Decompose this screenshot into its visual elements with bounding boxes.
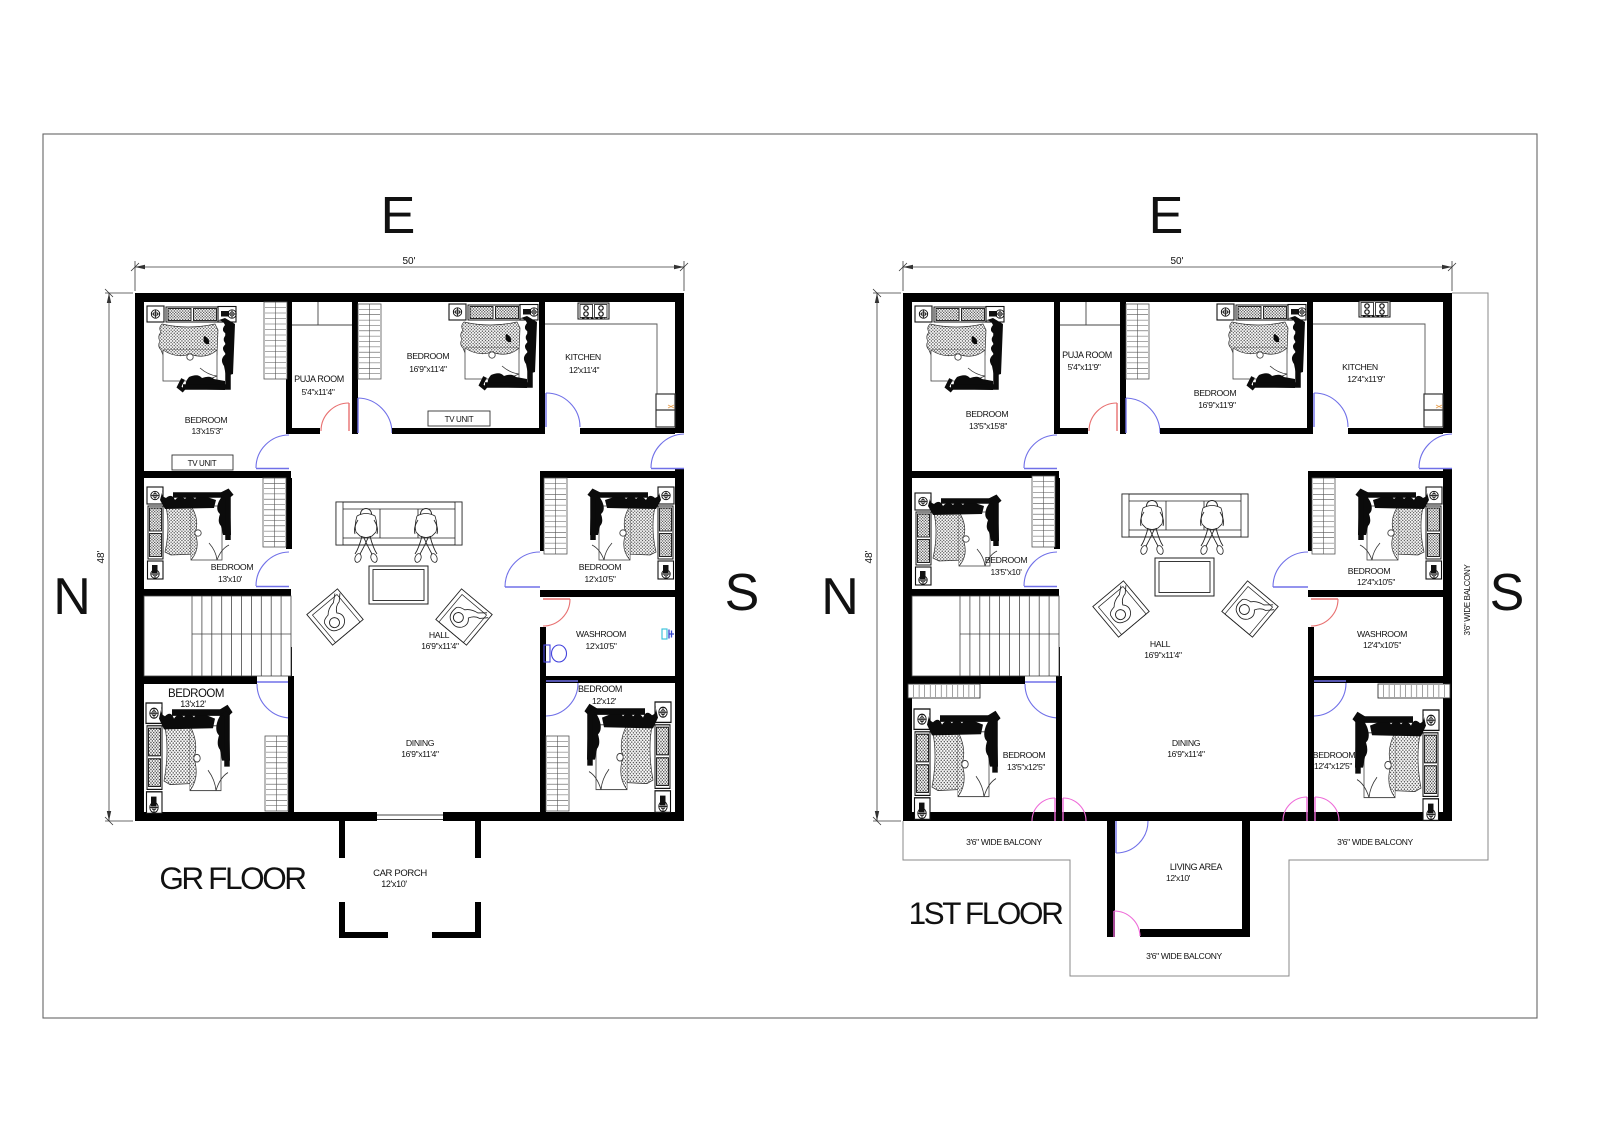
svg-text:BEDROOM: BEDROOM	[185, 415, 228, 425]
svg-text:PUJA ROOM: PUJA ROOM	[1062, 350, 1112, 360]
svg-text:16'9"x11'4": 16'9"x11'4"	[421, 641, 459, 651]
svg-text:LIVING AREA: LIVING AREA	[1170, 862, 1223, 872]
svg-text:50': 50'	[1170, 256, 1183, 267]
svg-text:48': 48'	[864, 550, 875, 563]
svg-text:13'x10': 13'x10'	[218, 574, 243, 584]
svg-text:16'9"x11'4": 16'9"x11'4"	[1144, 650, 1182, 660]
svg-text:DINING: DINING	[1172, 738, 1201, 748]
svg-text:BEDROOM: BEDROOM	[1194, 388, 1237, 398]
svg-text:12'4"x10'5": 12'4"x10'5"	[1363, 640, 1401, 650]
svg-text:5'4"x11'4": 5'4"x11'4"	[301, 387, 334, 397]
svg-text:BEDROOM: BEDROOM	[579, 562, 622, 572]
svg-text:13'x12': 13'x12'	[180, 699, 206, 709]
svg-text:16'9"x11'4": 16'9"x11'4"	[409, 364, 447, 374]
svg-text:S: S	[1490, 564, 1525, 622]
svg-text:3'6" WIDE BALCONY: 3'6" WIDE BALCONY	[966, 837, 1042, 847]
svg-text:16'9"x11'4": 16'9"x11'4"	[401, 749, 439, 759]
svg-text:3'6" WIDE BALCONY: 3'6" WIDE BALCONY	[1146, 951, 1222, 961]
svg-text:3'6" WIDE BALCONY: 3'6" WIDE BALCONY	[1337, 837, 1413, 847]
svg-text:5'4"x11'9": 5'4"x11'9"	[1067, 362, 1100, 372]
svg-text:48': 48'	[96, 550, 107, 563]
svg-text:BEDROOM: BEDROOM	[985, 555, 1028, 565]
svg-text:BEDROOM: BEDROOM	[1348, 566, 1391, 576]
svg-text:12'4"x10'5": 12'4"x10'5"	[1357, 577, 1395, 587]
svg-text:13'5"x12'5": 13'5"x12'5"	[1007, 762, 1045, 772]
svg-text:12'x10'5": 12'x10'5"	[586, 641, 617, 651]
svg-text:TV UNIT: TV UNIT	[445, 415, 474, 424]
svg-text:BEDROOM: BEDROOM	[1313, 750, 1356, 760]
svg-text:E: E	[1149, 187, 1184, 245]
svg-text:12'x12': 12'x12'	[592, 696, 617, 706]
svg-text:12'x11'4": 12'x11'4"	[569, 365, 600, 375]
svg-text:TV UNIT: TV UNIT	[188, 459, 217, 468]
svg-text:HALL: HALL	[1150, 639, 1171, 649]
svg-text:BEDROOM: BEDROOM	[211, 562, 254, 572]
svg-text:N: N	[821, 568, 859, 626]
svg-text:S: S	[725, 564, 760, 622]
svg-text:PUJA ROOM: PUJA ROOM	[294, 374, 344, 384]
svg-text:50': 50'	[402, 256, 415, 267]
svg-text:12'4"x11'9": 12'4"x11'9"	[1347, 374, 1385, 384]
svg-text:BEDROOM: BEDROOM	[1003, 750, 1046, 760]
svg-text:13'5"x10': 13'5"x10'	[991, 567, 1023, 577]
svg-text:13'5"x15'8": 13'5"x15'8"	[969, 421, 1007, 431]
svg-text:WASHROOM: WASHROOM	[1357, 629, 1407, 639]
svg-text:DINING: DINING	[406, 738, 435, 748]
svg-text:13'x15'3": 13'x15'3"	[192, 426, 223, 436]
svg-text:GR FLOOR: GR FLOOR	[159, 860, 306, 896]
svg-text:CAR PORCH: CAR PORCH	[373, 868, 427, 879]
svg-text:12'x10': 12'x10'	[1166, 873, 1191, 883]
svg-text:12'4"x12'5": 12'4"x12'5"	[1314, 761, 1352, 771]
svg-text:BEDROOM: BEDROOM	[966, 409, 1009, 419]
svg-text:12'x10'5": 12'x10'5"	[585, 574, 616, 584]
svg-text:N: N	[53, 568, 91, 626]
svg-text:KITCHEN: KITCHEN	[565, 352, 601, 362]
svg-text:16'9"x11'9": 16'9"x11'9"	[1198, 400, 1236, 410]
svg-text:KITCHEN: KITCHEN	[1342, 362, 1378, 372]
svg-text:3'6" WIDE BALCONY: 3'6" WIDE BALCONY	[1463, 564, 1472, 636]
svg-text:E: E	[381, 187, 416, 245]
svg-text:WASHROOM: WASHROOM	[576, 629, 626, 639]
svg-text:BEDROOM: BEDROOM	[578, 684, 622, 694]
svg-text:1ST FLOOR: 1ST FLOOR	[909, 895, 1064, 931]
svg-text:16'9"x11'4": 16'9"x11'4"	[1167, 749, 1205, 759]
svg-text:HALL: HALL	[429, 630, 450, 640]
svg-text:12'x10': 12'x10'	[381, 879, 407, 889]
svg-text:BEDROOM: BEDROOM	[407, 351, 450, 361]
